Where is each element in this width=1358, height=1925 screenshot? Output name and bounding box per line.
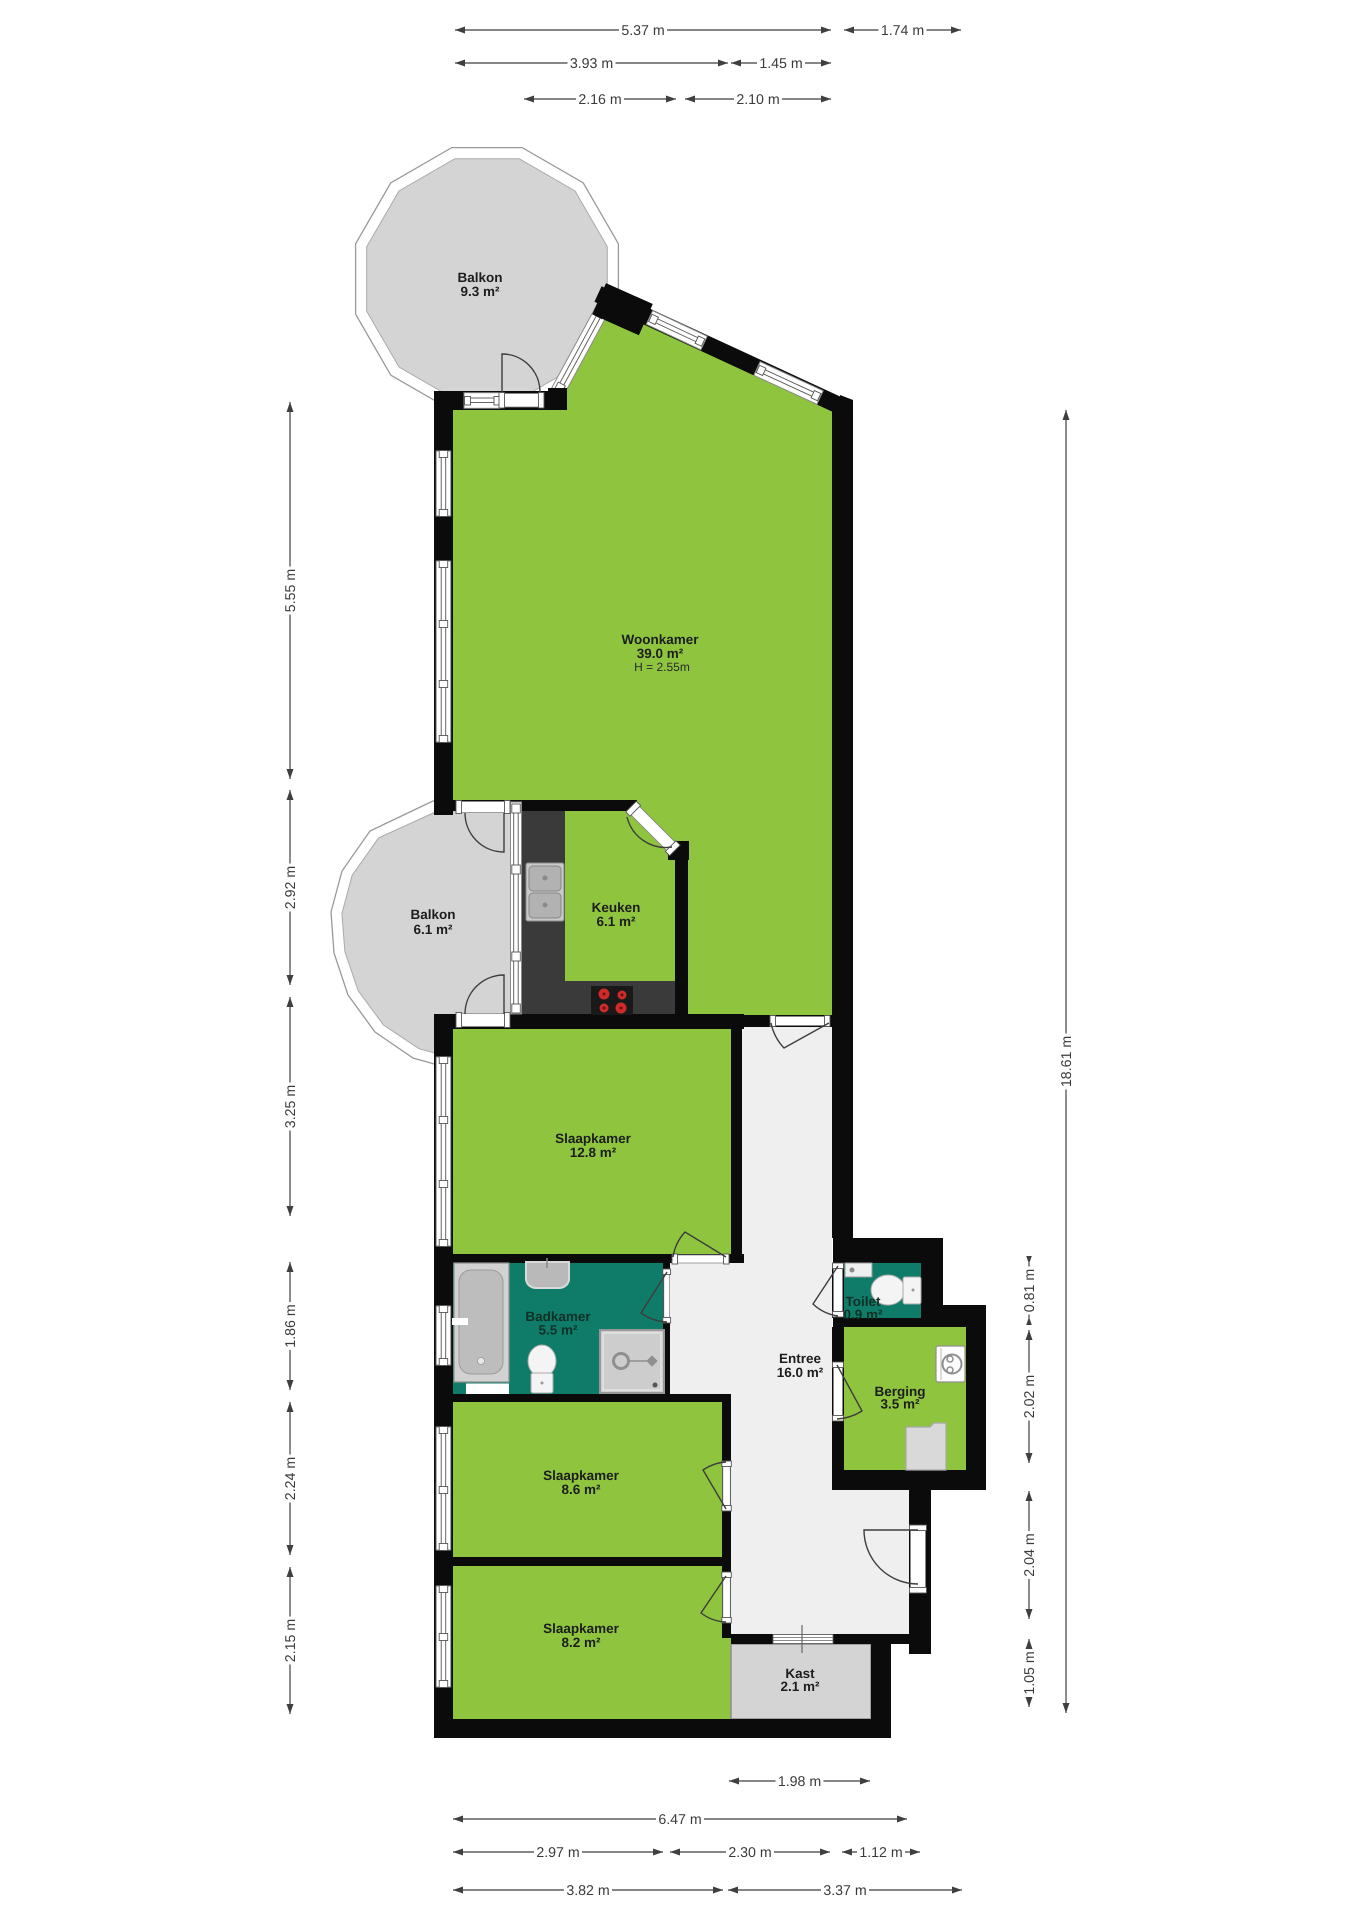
svg-text:12.8 m²: 12.8 m² xyxy=(570,1145,617,1160)
svg-text:2.02 m: 2.02 m xyxy=(1022,1375,1038,1418)
svg-text:18.61 m: 18.61 m xyxy=(1059,1036,1075,1087)
svg-text:H = 2.55m: H = 2.55m xyxy=(634,660,690,674)
svg-text:3.5 m²: 3.5 m² xyxy=(880,1397,920,1412)
svg-text:Slaapkamer: Slaapkamer xyxy=(543,1468,620,1483)
svg-text:3.25 m: 3.25 m xyxy=(283,1085,299,1128)
svg-text:1.45 m: 1.45 m xyxy=(759,56,802,72)
svg-text:0.81 m: 0.81 m xyxy=(1022,1269,1038,1312)
svg-text:Entree: Entree xyxy=(779,1351,822,1366)
svg-text:39.0 m²: 39.0 m² xyxy=(637,646,684,661)
svg-text:Woonkamer: Woonkamer xyxy=(621,632,699,647)
svg-text:3.37 m: 3.37 m xyxy=(823,1883,866,1899)
svg-text:6.1 m²: 6.1 m² xyxy=(596,914,636,929)
svg-text:3.93 m: 3.93 m xyxy=(570,56,613,72)
svg-text:8.6 m²: 8.6 m² xyxy=(561,1482,601,1497)
svg-text:2.24 m: 2.24 m xyxy=(283,1457,299,1500)
svg-text:9.3 m²: 9.3 m² xyxy=(460,284,500,299)
svg-text:5.37 m: 5.37 m xyxy=(621,23,664,39)
svg-text:3.82 m: 3.82 m xyxy=(566,1883,609,1899)
svg-text:5.5 m²: 5.5 m² xyxy=(538,1323,578,1338)
svg-text:16.0 m²: 16.0 m² xyxy=(777,1365,824,1380)
svg-text:2.15 m: 2.15 m xyxy=(283,1619,299,1662)
svg-text:2.92 m: 2.92 m xyxy=(283,866,299,909)
svg-text:2.10 m: 2.10 m xyxy=(736,92,779,108)
svg-text:2.30 m: 2.30 m xyxy=(728,1845,771,1861)
svg-text:6.1 m²: 6.1 m² xyxy=(413,922,453,937)
svg-text:8.2 m²: 8.2 m² xyxy=(561,1635,601,1650)
svg-text:2.1 m²: 2.1 m² xyxy=(780,1679,820,1694)
svg-text:1.98 m: 1.98 m xyxy=(778,1774,821,1790)
svg-text:5.55 m: 5.55 m xyxy=(283,569,299,612)
svg-text:2.97 m: 2.97 m xyxy=(536,1845,579,1861)
svg-text:2.04 m: 2.04 m xyxy=(1022,1533,1038,1576)
svg-text:Keuken: Keuken xyxy=(592,900,641,915)
svg-text:1.74 m: 1.74 m xyxy=(881,23,924,39)
svg-text:6.47 m: 6.47 m xyxy=(658,1812,701,1828)
svg-text:Balkon: Balkon xyxy=(457,270,502,285)
svg-text:1.86 m: 1.86 m xyxy=(283,1304,299,1347)
svg-text:1.05 m: 1.05 m xyxy=(1022,1651,1038,1694)
svg-text:Balkon: Balkon xyxy=(410,907,455,922)
svg-text:2.16 m: 2.16 m xyxy=(578,92,621,108)
svg-text:Slaapkamer: Slaapkamer xyxy=(555,1131,632,1146)
svg-text:Slaapkamer: Slaapkamer xyxy=(543,1621,620,1636)
svg-text:0.9 m²: 0.9 m² xyxy=(843,1307,883,1322)
svg-text:1.12 m: 1.12 m xyxy=(859,1845,902,1861)
